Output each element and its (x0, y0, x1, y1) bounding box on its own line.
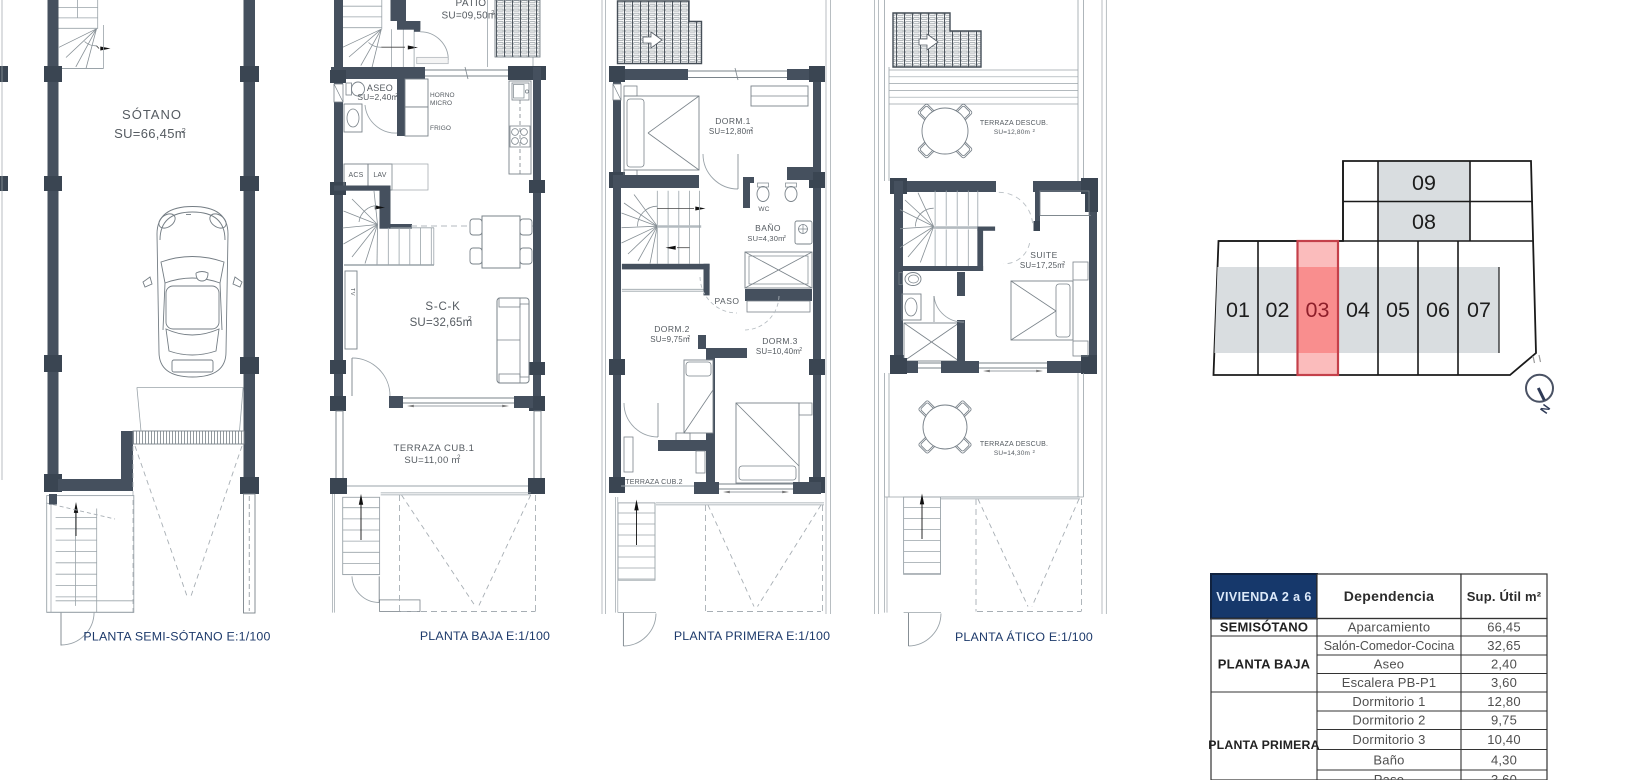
svg-text:SU=9,75m: SU=9,75m (650, 335, 690, 344)
svg-text:PASO: PASO (715, 296, 740, 306)
svg-text:SU=4,30m: SU=4,30m (747, 234, 784, 243)
svg-text:05: 05 (1386, 298, 1410, 322)
svg-text:TERRAZA DESCUB.: TERRAZA DESCUB. (980, 441, 1048, 448)
svg-text:07: 07 (1467, 298, 1491, 322)
svg-text:PLANTA PRIMERA: PLANTA PRIMERA (1208, 738, 1319, 752)
svg-text:3,60: 3,60 (1491, 675, 1517, 690)
svg-text:DORM.2: DORM.2 (654, 324, 689, 334)
svg-text:SUITE: SUITE (1030, 250, 1058, 260)
svg-text:66,45: 66,45 (1487, 620, 1521, 635)
svg-text:Dependencia: Dependencia (1344, 588, 1434, 604)
svg-text:Dormitorio 1: Dormitorio 1 (1352, 694, 1425, 709)
svg-text:02: 02 (1266, 298, 1290, 322)
svg-text:03: 03 (1306, 298, 1330, 322)
svg-text:Escalera PB-P1: Escalera PB-P1 (1342, 675, 1437, 690)
svg-text:Baño: Baño (1373, 753, 1404, 768)
svg-text:SÓTANO: SÓTANO (122, 107, 182, 122)
svg-text:PLANTA ÁTICO E:1/100: PLANTA ÁTICO E:1/100 (955, 629, 1093, 644)
svg-text:2: 2 (1062, 261, 1065, 267)
svg-text:SEMISÓTANO: SEMISÓTANO (1220, 620, 1308, 635)
svg-text:PLANTA SEMI-SÓTANO E:1/100: PLANTA SEMI-SÓTANO E:1/100 (83, 629, 270, 644)
svg-text:10,40: 10,40 (1487, 732, 1521, 747)
svg-text:SU=66,45m: SU=66,45m (114, 126, 186, 141)
svg-text:2: 2 (783, 234, 786, 239)
svg-text:PLANTA PRIMERA E:1/100: PLANTA PRIMERA E:1/100 (674, 629, 830, 643)
svg-text:PATIO: PATIO (455, 0, 486, 9)
svg-text:SU=12,80m: SU=12,80m (709, 127, 753, 136)
svg-text:Aseo: Aseo (1374, 657, 1404, 672)
svg-text:TERRAZA CUB.2: TERRAZA CUB.2 (625, 479, 682, 486)
svg-text:2: 2 (182, 126, 187, 135)
svg-text:SU=11,00 m: SU=11,00 m (404, 455, 459, 466)
svg-text:2: 2 (468, 316, 472, 323)
svg-text:2: 2 (1032, 128, 1035, 133)
svg-text:2: 2 (687, 335, 690, 341)
svg-text:SU=12,80m: SU=12,80m (994, 129, 1030, 136)
svg-text:VIVIENDA 2 a 6: VIVIENDA 2 a 6 (1216, 590, 1311, 604)
svg-text:12,80: 12,80 (1487, 694, 1521, 709)
svg-text:32,65: 32,65 (1487, 638, 1521, 653)
svg-text:TERRAZA CUB.1: TERRAZA CUB.1 (394, 443, 475, 454)
svg-text:08: 08 (1412, 210, 1436, 234)
svg-text:SU=14,30m: SU=14,30m (994, 450, 1030, 457)
svg-text:SU=2,40m: SU=2,40m (357, 92, 398, 102)
svg-text:WC: WC (758, 206, 769, 213)
svg-text:SU=32,65m: SU=32,65m (410, 317, 473, 329)
svg-text:Sup. Útil m²: Sup. Útil m² (1467, 589, 1542, 604)
svg-text:N: N (1539, 402, 1554, 416)
svg-text:TV: TV (349, 288, 355, 296)
svg-text:01: 01 (1226, 298, 1250, 322)
svg-text:SU=10,40m: SU=10,40m (756, 347, 800, 356)
svg-text:BAÑO: BAÑO (755, 223, 781, 233)
svg-text:Aparcamiento: Aparcamiento (1348, 620, 1431, 635)
svg-text:PLANTA BAJA: PLANTA BAJA (1218, 657, 1311, 672)
svg-text:SU=17,25m: SU=17,25m (1020, 261, 1064, 270)
svg-text:TERRAZA DESCUB.: TERRAZA DESCUB. (980, 120, 1048, 127)
svg-text:2: 2 (491, 11, 495, 17)
svg-text:06: 06 (1426, 298, 1450, 322)
svg-text:04: 04 (1346, 298, 1370, 322)
svg-text:2: 2 (1032, 449, 1035, 454)
svg-text:LAV: LAV (373, 172, 386, 179)
svg-text:2: 2 (750, 127, 753, 133)
svg-text:3,60: 3,60 (1491, 772, 1517, 780)
svg-text:S-C-K: S-C-K (425, 301, 460, 313)
svg-text:Paso: Paso (1374, 772, 1404, 780)
svg-text:HORNO: HORNO (430, 92, 455, 99)
svg-text:09: 09 (1412, 171, 1436, 195)
svg-text:ACS: ACS (349, 172, 364, 179)
svg-text:Dormitorio 2: Dormitorio 2 (1352, 713, 1425, 728)
svg-text:DORM.3: DORM.3 (762, 336, 797, 346)
svg-text:2: 2 (799, 347, 802, 353)
svg-text:Dormitorio 3: Dormitorio 3 (1352, 732, 1425, 747)
svg-text:SU=09,50m: SU=09,50m (442, 11, 497, 22)
svg-text:MICRO: MICRO (430, 100, 452, 107)
svg-text:FRIGO: FRIGO (430, 125, 451, 132)
svg-text:PLANTA BAJA E:1/100: PLANTA BAJA E:1/100 (420, 629, 550, 643)
svg-text:Salón-Comedor-Cocina: Salón-Comedor-Cocina (1324, 639, 1455, 653)
svg-text:4,30: 4,30 (1491, 753, 1517, 768)
svg-text:2: 2 (457, 455, 461, 461)
svg-text:2,40: 2,40 (1491, 657, 1517, 672)
svg-text:DORM.1: DORM.1 (715, 116, 750, 126)
svg-text:9,75: 9,75 (1491, 713, 1517, 728)
